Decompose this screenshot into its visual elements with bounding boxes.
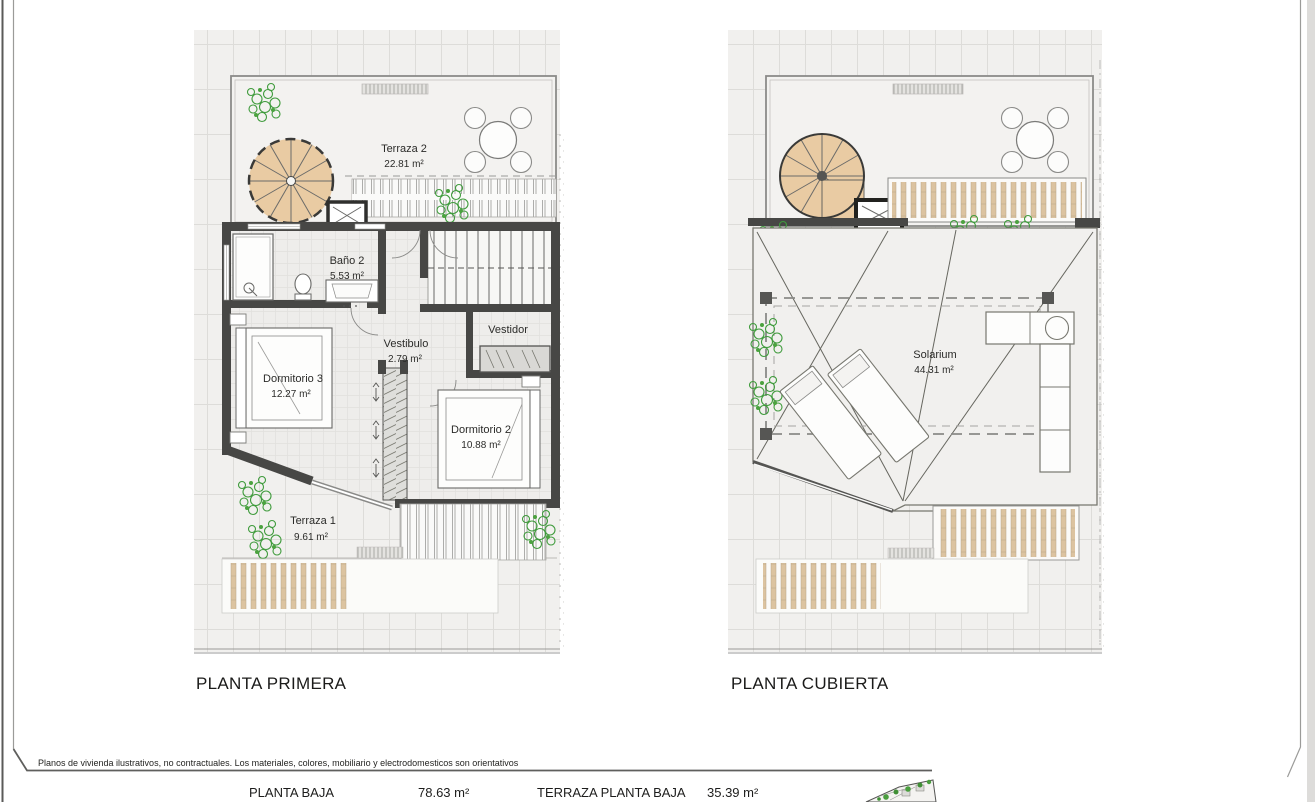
plan-title-cubierta: PLANTA CUBIERTA — [731, 674, 889, 693]
room-label-terraza2: Terraza 2 — [381, 143, 427, 155]
room-label-solarium: Solarium — [913, 349, 956, 361]
toilet-icon — [295, 274, 311, 294]
room-area-terraza1: 9.61 m² — [294, 532, 329, 543]
table-row1-value2: 35.39 m² — [707, 785, 759, 800]
grill-vent — [357, 547, 403, 558]
wall — [748, 218, 908, 226]
room-area-terraza2: 22.81 m² — [384, 159, 424, 170]
grill-vent — [362, 84, 428, 94]
areas-table: PLANTA BAJA 78.63 m² TERRAZA PLANTA BAJA… — [249, 785, 759, 802]
disclaimer-text: Planos de vivienda ilustrativos, no cont… — [38, 758, 519, 768]
wood-deck-slats — [230, 563, 350, 609]
table-row1-value1: 78.63 m² — [418, 785, 470, 800]
room-label-vestibulo: Vestibulo — [384, 338, 429, 350]
page-edge — [1307, 0, 1315, 802]
plan-title-primera: PLANTA PRIMERA — [196, 674, 347, 693]
floor-plan-cubierta: Solarium 44.31 m² — [728, 30, 1104, 653]
floor-plan-primera: Terraza 2 22.81 m² Baño 2 5.53 m² Vestib… — [194, 30, 564, 653]
pergola-slats-lower — [937, 509, 1075, 557]
staircase — [428, 226, 553, 306]
room-label-dormitorio3: Dormitorio 3 — [263, 373, 323, 385]
room-area-dormitorio2: 10.88 m² — [461, 440, 501, 451]
spiral-staircase — [249, 139, 333, 223]
room-area-vestibulo: 2.79 m² — [388, 354, 423, 365]
plan-sheet: Terraza 2 22.81 m² Baño 2 5.53 m² Vestib… — [0, 0, 1315, 802]
table-row1-label1: PLANTA BAJA — [249, 785, 334, 800]
room-area-dormitorio3: 12.27 m² — [271, 389, 311, 400]
wall — [1075, 218, 1100, 228]
pergola-slats-lower — [400, 504, 546, 560]
site-plan-thumbnail — [866, 780, 936, 802]
room-area-bano2: 5.53 m² — [330, 271, 365, 282]
wood-deck-slats — [763, 563, 881, 609]
stair-strip — [383, 368, 407, 500]
grill-vent — [888, 548, 934, 558]
architectural-drawing: Terraza 2 22.81 m² Baño 2 5.53 m² Vestib… — [0, 0, 1315, 802]
room-label-bano2: Baño 2 — [330, 255, 365, 267]
room-area-solarium: 44.31 m² — [914, 365, 954, 376]
room-label-vestidor: Vestidor — [488, 324, 528, 336]
room-label-terraza1: Terraza 1 — [290, 515, 336, 527]
room-label-dormitorio2: Dormitorio 2 — [451, 424, 511, 436]
pergola-slats — [892, 182, 1082, 218]
grill-vent — [893, 84, 963, 94]
side-table — [1046, 317, 1069, 340]
table-row1-label2: TERRAZA PLANTA BAJA — [537, 785, 686, 800]
wardrobe — [480, 346, 550, 372]
